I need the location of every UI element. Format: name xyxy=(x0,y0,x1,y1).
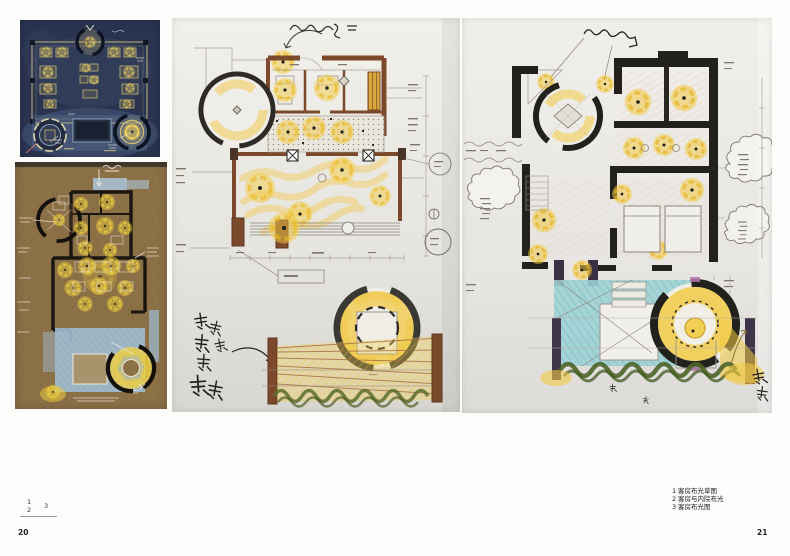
caption-line: 3客房布光图 xyxy=(672,503,724,511)
caption-line: 1客房布光草图 xyxy=(672,487,724,495)
caption-text: 客房布光草图 xyxy=(678,487,717,495)
plan-sketch-door-strip xyxy=(368,72,380,110)
kraft-sketch-art xyxy=(15,162,167,409)
caption-list: 1客房布光草图 2客房与内院布光 3客房布光图 xyxy=(672,487,724,511)
book-spread: 1 2 3 1客房布光草图 2客房与内院布光 3客房布光图 20 21 xyxy=(0,0,790,556)
figure-key-number: 3 xyxy=(44,502,48,510)
page-number-left: 20 xyxy=(18,528,28,537)
figure-key-number: 2 xyxy=(27,506,31,514)
figure-kraft-paper-sketch xyxy=(15,162,167,409)
figure-position-key: 1 2 3 xyxy=(20,498,60,520)
figure-key-rule xyxy=(20,516,57,517)
night-sketch-art xyxy=(20,20,160,157)
plan-sketch-stipple-terrace xyxy=(268,116,384,152)
plan-final-art xyxy=(462,18,772,413)
caption-text: 客房与内院布光 xyxy=(678,495,724,503)
caption-text: 客房布光图 xyxy=(678,503,711,511)
figure-lighting-plan-final xyxy=(462,18,772,413)
night-tower-left xyxy=(34,119,66,151)
night-pool xyxy=(73,119,111,142)
caption-line: 2客房与内院布光 xyxy=(672,495,724,503)
page-number-right: 21 xyxy=(757,528,767,537)
figure-lighting-plan-sketch xyxy=(172,18,460,412)
figure-night-lighting-sketch xyxy=(20,20,160,157)
plan-sketch-art xyxy=(172,18,460,412)
figure-key-number: 1 xyxy=(27,498,31,506)
